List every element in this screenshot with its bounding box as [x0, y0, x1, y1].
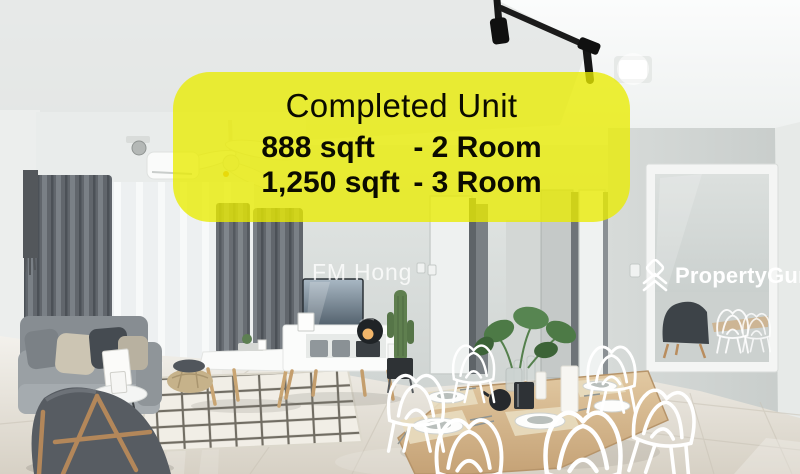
curtain-middle	[216, 203, 250, 353]
recessed-light-icon	[614, 53, 652, 85]
photo-frame	[298, 313, 314, 331]
propertyguru-logo-text: PropertyGuru	[675, 257, 800, 295]
photographer-watermark: FM Hong	[312, 259, 412, 286]
storage-basket	[310, 340, 328, 357]
candle	[536, 372, 546, 399]
floor-cushion	[173, 360, 205, 373]
unit-rooms: - 3 Room	[413, 165, 541, 200]
unit-size: 888 sqft	[261, 130, 403, 165]
storage-basket	[332, 340, 350, 357]
propertyguru-watermark: PropertyGuru	[641, 257, 800, 295]
unit-size: 1,250 sqft	[261, 165, 403, 200]
listing-photo: Completed Unit 888 sqft - 2 Room 1,250 s…	[0, 0, 800, 474]
banner-unit-list: 888 sqft - 2 Room 1,250 sqft - 3 Room	[261, 130, 541, 200]
table-plant	[242, 334, 252, 344]
candle	[561, 366, 578, 412]
propertyguru-logo-icon	[641, 259, 669, 293]
banner-title: Completed Unit	[173, 87, 630, 125]
wall-hanging	[23, 170, 38, 258]
info-banner: Completed Unit 888 sqft - 2 Room 1,250 s…	[173, 72, 630, 222]
unit-rooms: - 2 Room	[413, 130, 541, 165]
